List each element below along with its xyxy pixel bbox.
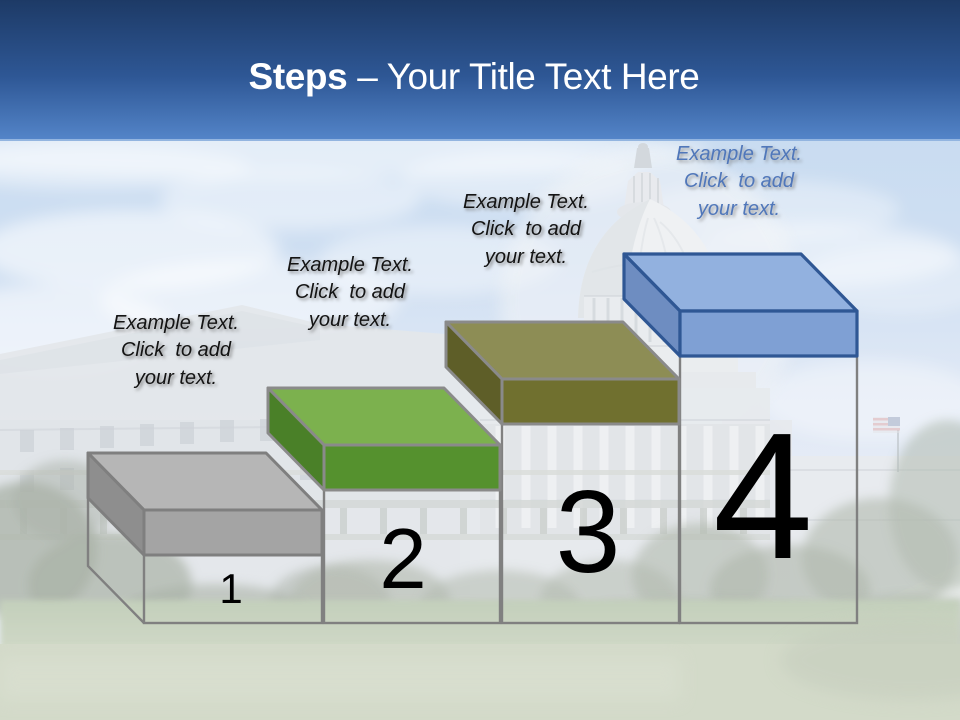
svg-text:2: 2 — [379, 512, 426, 607]
svg-text:1: 1 — [219, 565, 242, 612]
svg-text:4: 4 — [713, 396, 813, 597]
svg-text:3: 3 — [555, 466, 620, 597]
